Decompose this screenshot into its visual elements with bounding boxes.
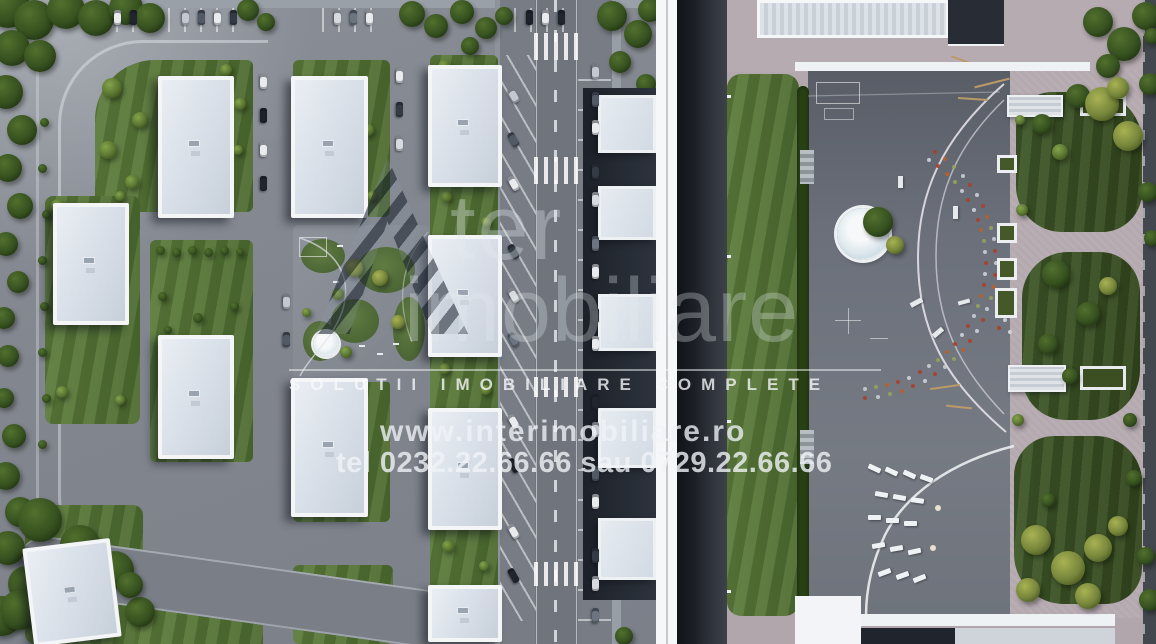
roof-vent [188, 140, 200, 147]
tree [1084, 534, 1112, 562]
car [592, 548, 599, 563]
tree [132, 112, 148, 128]
tree [204, 248, 213, 257]
car [130, 10, 137, 25]
car [366, 10, 373, 25]
building-roof [57, 207, 125, 321]
tree [332, 288, 344, 300]
tree [1015, 115, 1025, 125]
tree [495, 7, 513, 25]
flower-dot [972, 208, 976, 212]
roof-vent [457, 462, 469, 469]
tree [1075, 583, 1101, 609]
car [542, 10, 549, 25]
tree [7, 115, 37, 145]
car [592, 120, 599, 135]
tree [481, 217, 491, 227]
flower-dot [863, 387, 867, 391]
car [592, 336, 599, 351]
tree [597, 1, 627, 31]
tree [1099, 277, 1117, 295]
tree [42, 394, 51, 403]
tree [1139, 73, 1156, 95]
tree [439, 363, 450, 374]
tree [475, 17, 497, 39]
tree [1016, 578, 1040, 602]
planter-box [995, 288, 1017, 318]
flower-dot [968, 339, 972, 343]
building-roof [601, 297, 653, 348]
flower-dot [876, 395, 880, 399]
tree [461, 37, 479, 55]
lane-line [536, 0, 537, 644]
roof-vent [457, 607, 469, 614]
building-roof [162, 339, 230, 455]
apartment-building [291, 76, 368, 218]
roof-vent [191, 151, 200, 156]
tree [302, 308, 311, 317]
tree [609, 51, 631, 73]
tree [220, 246, 229, 255]
flower-dot [961, 348, 965, 352]
flower-dot [961, 174, 965, 178]
building-wall-dark [861, 628, 955, 644]
tree [38, 256, 47, 265]
table [935, 505, 941, 511]
car [592, 608, 599, 623]
apartment-building [598, 95, 656, 153]
divider-line [666, 0, 668, 644]
tree [125, 597, 155, 627]
courtyard-green [331, 299, 379, 343]
apartment-building [428, 408, 502, 530]
garden-lawn [1022, 252, 1140, 420]
building-roof [162, 80, 230, 214]
bench [898, 176, 903, 188]
tree [1051, 551, 1085, 585]
flower-dot [976, 218, 980, 222]
roof-vent [322, 441, 334, 448]
flower-dot [1003, 318, 1007, 322]
sun-lounger [886, 518, 899, 523]
stairs [800, 150, 814, 184]
tree [40, 118, 49, 127]
car [592, 576, 599, 591]
apartment-building [598, 518, 656, 580]
building-roof [295, 80, 364, 214]
flower-dot [927, 158, 931, 162]
bench [359, 345, 365, 347]
bench [333, 281, 339, 283]
crosswalk [534, 562, 579, 586]
tree [115, 395, 125, 405]
car [526, 10, 533, 25]
car [230, 10, 237, 25]
car [114, 10, 121, 25]
car [182, 10, 189, 25]
tree [1076, 302, 1100, 326]
tree [441, 191, 452, 202]
lawn-band [727, 74, 799, 616]
building-roof-dark [948, 0, 1004, 46]
building-roof [27, 542, 117, 642]
roof-vent [191, 401, 200, 406]
tree [638, 0, 656, 22]
court-marking [816, 82, 860, 104]
flower-dot [960, 189, 964, 193]
car [260, 142, 267, 157]
tree [424, 14, 448, 38]
car [592, 308, 599, 323]
roof-vent [83, 257, 95, 264]
flower-dot [981, 204, 985, 208]
roof-vent [457, 119, 469, 126]
apartment-building [598, 408, 656, 468]
tree [1132, 2, 1156, 30]
site-plan-panel [0, 0, 656, 644]
building-shadow-band [677, 0, 727, 644]
planter [1080, 366, 1126, 390]
tree [117, 572, 143, 598]
flower-dot [989, 226, 993, 230]
tree [0, 307, 15, 329]
tree [102, 78, 122, 98]
planter-box [997, 258, 1017, 280]
building-roof [601, 411, 653, 465]
tree [345, 259, 363, 277]
car [558, 10, 565, 25]
building-roof [432, 412, 498, 526]
sun-lounger [868, 515, 881, 520]
tree [340, 346, 352, 358]
building-roof [432, 239, 498, 353]
courtyard-plaza [293, 225, 430, 382]
tree [193, 313, 203, 323]
flower-dot [982, 239, 986, 243]
flower-dot [984, 261, 988, 265]
planter-box [997, 223, 1017, 243]
tree [1107, 77, 1129, 99]
tree [886, 236, 904, 254]
roof-vent [322, 140, 334, 147]
tree [399, 1, 425, 27]
planter-box [997, 155, 1017, 173]
building-roof [757, 0, 949, 38]
tree [0, 388, 14, 408]
apartment-building [598, 186, 656, 240]
court-marking [824, 108, 854, 120]
flower-dot [975, 193, 979, 197]
tree [38, 164, 47, 173]
car [592, 236, 599, 251]
courtyard-panel [677, 0, 1156, 644]
car [592, 64, 599, 79]
car [334, 10, 341, 25]
flower-dot [943, 157, 947, 161]
roof-vent [460, 473, 469, 478]
tree [1052, 144, 1068, 160]
tree [38, 440, 47, 449]
bench [337, 245, 343, 247]
roof-vent [325, 452, 334, 457]
tree [38, 348, 47, 357]
flower-dot [997, 326, 1001, 330]
tree [233, 145, 243, 155]
car [592, 192, 599, 207]
building-roof [601, 98, 653, 150]
tree [42, 210, 51, 219]
flower-dot [1008, 330, 1012, 334]
tree [1113, 121, 1143, 151]
tree [115, 191, 125, 201]
tree [0, 345, 19, 367]
playground-marking [299, 237, 327, 257]
tree [188, 246, 197, 255]
car [396, 68, 403, 83]
table [930, 545, 936, 551]
tree [372, 270, 388, 286]
apartment-building [53, 203, 129, 325]
tree [863, 207, 893, 237]
tree [125, 175, 139, 189]
tree [479, 561, 489, 571]
tree [450, 0, 474, 24]
tree [234, 98, 246, 110]
apartment-building [598, 294, 656, 351]
tree [1138, 182, 1156, 202]
pergola [1007, 95, 1063, 117]
tree [237, 0, 259, 21]
car [260, 74, 267, 89]
car [592, 394, 599, 409]
tree [1041, 493, 1055, 507]
building-wall [955, 628, 1115, 644]
roof-vent [460, 300, 469, 305]
tree [99, 141, 117, 159]
car [592, 92, 599, 107]
panel-divider [656, 0, 677, 644]
building-corner [795, 596, 861, 644]
flower-dot [907, 376, 911, 380]
bench [393, 343, 399, 345]
tree [257, 13, 275, 31]
apartment-building [22, 538, 121, 644]
car [592, 164, 599, 179]
crosswalk [534, 157, 579, 184]
tree [2, 424, 26, 448]
car [592, 264, 599, 279]
flower-dot [982, 283, 986, 287]
tree [7, 193, 33, 219]
car [214, 10, 221, 25]
pergola [1008, 365, 1066, 392]
car [592, 466, 599, 481]
car [198, 10, 205, 25]
flower-dot [923, 379, 927, 383]
apartment-building [291, 378, 368, 517]
tree [624, 20, 652, 48]
car [260, 176, 267, 191]
apartment-building [428, 65, 502, 187]
tree [442, 540, 454, 552]
court-marking [848, 308, 849, 334]
tree [7, 271, 29, 293]
building-roof [432, 69, 498, 183]
roof-vent [325, 151, 334, 156]
flower-dot [966, 198, 970, 202]
tree [230, 302, 239, 311]
roof-vent [460, 130, 469, 135]
car [592, 494, 599, 509]
apartment-building [158, 335, 234, 459]
car [396, 102, 403, 117]
tree [156, 246, 165, 255]
car [260, 108, 267, 123]
tree [1096, 54, 1120, 78]
tree [1126, 470, 1142, 486]
apartment-building [158, 76, 234, 218]
building-roof [432, 589, 498, 638]
building-roof [601, 521, 653, 577]
tree [135, 3, 165, 33]
tree [18, 498, 62, 542]
tree [0, 462, 20, 490]
roof-vent [460, 618, 469, 623]
lane-line [576, 0, 577, 644]
tree [1083, 7, 1113, 37]
tree [1021, 525, 1051, 555]
courtyard-green [357, 247, 415, 293]
curb [36, 70, 39, 540]
roof-vent [457, 289, 469, 296]
tree [1032, 114, 1052, 134]
flower-dot [943, 365, 947, 369]
parapet [795, 62, 1090, 71]
tree [367, 191, 377, 201]
bench [377, 353, 383, 355]
car [396, 136, 403, 151]
roof-vent [63, 585, 76, 593]
roof-vent [188, 390, 200, 397]
sun-lounger [904, 521, 917, 526]
tree [56, 386, 68, 398]
apartment-building [428, 585, 502, 642]
court-marking [870, 338, 888, 339]
tree [1016, 204, 1028, 216]
plaza [808, 70, 1010, 618]
flower-dot [985, 215, 989, 219]
building-roof [295, 382, 364, 513]
tree [1038, 334, 1058, 354]
flower-dot [975, 329, 979, 333]
tree [40, 302, 49, 311]
aerial-render: ter imobiliare SOLUTII IMOBILIARE COMPLE… [0, 0, 1156, 644]
tree [1139, 589, 1156, 611]
tree [24, 40, 56, 72]
tree [220, 64, 232, 76]
courtyard-green [393, 297, 425, 361]
flower-dot [933, 150, 937, 154]
crosswalk [534, 33, 579, 60]
tree [164, 326, 172, 334]
flower-dot [953, 180, 957, 184]
tree [1108, 516, 1128, 536]
crosswalk [534, 377, 579, 397]
apartment-building [428, 235, 502, 357]
car [283, 294, 290, 309]
building-roof [601, 189, 653, 237]
tree [172, 248, 181, 257]
tree [1012, 414, 1024, 426]
tree [1144, 230, 1156, 246]
tree [391, 315, 405, 329]
flower-dot [900, 389, 904, 393]
tree [481, 385, 491, 395]
tree [236, 248, 244, 256]
car [283, 332, 290, 347]
tree [1144, 28, 1156, 44]
tree [158, 292, 167, 301]
lane-dashes [554, 0, 557, 644]
tree [1062, 368, 1078, 384]
flower-dot [945, 172, 949, 176]
tree [1123, 413, 1137, 427]
tree [615, 627, 633, 644]
stairs [800, 430, 814, 464]
roof-vent [86, 268, 95, 273]
car [350, 10, 357, 25]
tree [1137, 547, 1155, 565]
tree [1042, 260, 1070, 288]
fountain [313, 331, 339, 357]
car [592, 422, 599, 437]
bench [953, 206, 958, 219]
